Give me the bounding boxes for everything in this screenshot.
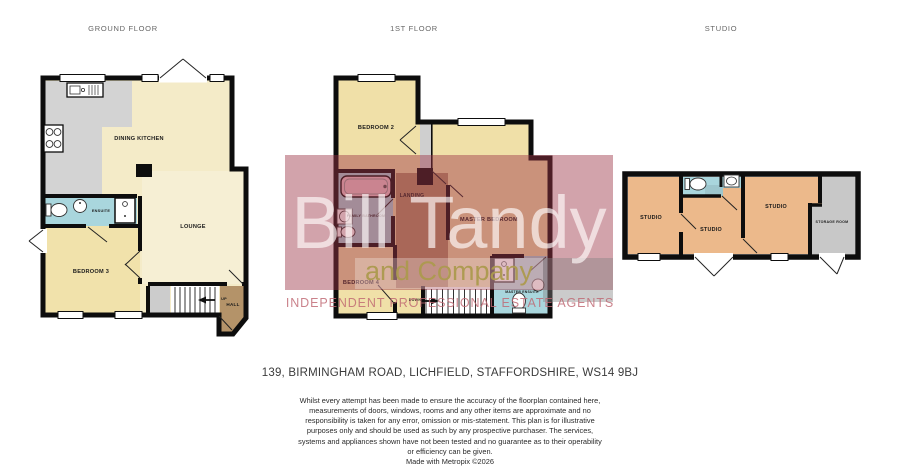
room-label-bedroom2: BEDROOM 2 xyxy=(358,125,394,131)
watermark-company-line: and Company xyxy=(285,257,613,287)
studio-double-door-opening xyxy=(694,253,733,262)
disclaimer-text: Whilst every attempt has been made to en… xyxy=(295,396,605,457)
stairs-label-up: UP xyxy=(221,297,227,301)
studio-toilet-icon xyxy=(685,178,706,190)
first-floor-title: 1ST FLOOR xyxy=(344,24,484,33)
room-label-storage: STORAGE ROOM xyxy=(816,220,849,224)
studio-sink-icon xyxy=(724,175,739,187)
room-label-dining-kitchen: DINING KITCHEN xyxy=(114,136,164,142)
room-label-ensuite: ENSUITE xyxy=(92,209,110,213)
watermark-brand-name: Bill Tandy xyxy=(283,186,615,260)
ensuite-sink-icon xyxy=(74,200,87,213)
disclaimer-block: Whilst every attempt has been made to en… xyxy=(295,396,605,466)
property-address: 139, BIRMINGHAM ROAD, LICHFIELD, STAFFOR… xyxy=(150,367,750,379)
room-label-studio3: STUDIO xyxy=(765,204,787,210)
watermark-strapline: INDEPENDENT PROFESSIONAL ESTATE AGENTS xyxy=(278,296,622,310)
room-label-hall: HALL xyxy=(226,302,239,307)
wall-stub xyxy=(136,164,152,177)
room-label-master-ensuite: MASTER ENSUITE xyxy=(505,290,539,294)
ground-floor-plan: DINING KITCHEN LOUNGE BEDROOM 3 ENSUITE … xyxy=(29,59,246,334)
hob-icon xyxy=(44,125,63,152)
room-label-bedroom3: BEDROOM 3 xyxy=(73,269,109,275)
room-label-lounge: LOUNGE xyxy=(180,224,205,230)
room-label-studio1: STUDIO xyxy=(640,215,662,221)
patio-door-opening xyxy=(159,74,207,83)
studio-plan: STUDIO STUDIO STUDIO STORAGE ROOM xyxy=(625,174,858,276)
room-label-studio2: STUDIO xyxy=(700,227,722,233)
kitchen-sink-unit xyxy=(67,83,103,97)
metropix-credit: Made with Metropix ©2026 xyxy=(295,457,605,466)
ensuite-toilet-icon xyxy=(46,204,67,217)
studio-title: STUDIO xyxy=(651,24,791,33)
ground-floor-title: GROUND FLOOR xyxy=(53,24,193,33)
floorplan-page: DINING KITCHEN LOUNGE BEDROOM 3 ENSUITE … xyxy=(0,0,900,466)
vestibule-floor xyxy=(150,286,170,314)
shower-icon xyxy=(115,198,135,223)
